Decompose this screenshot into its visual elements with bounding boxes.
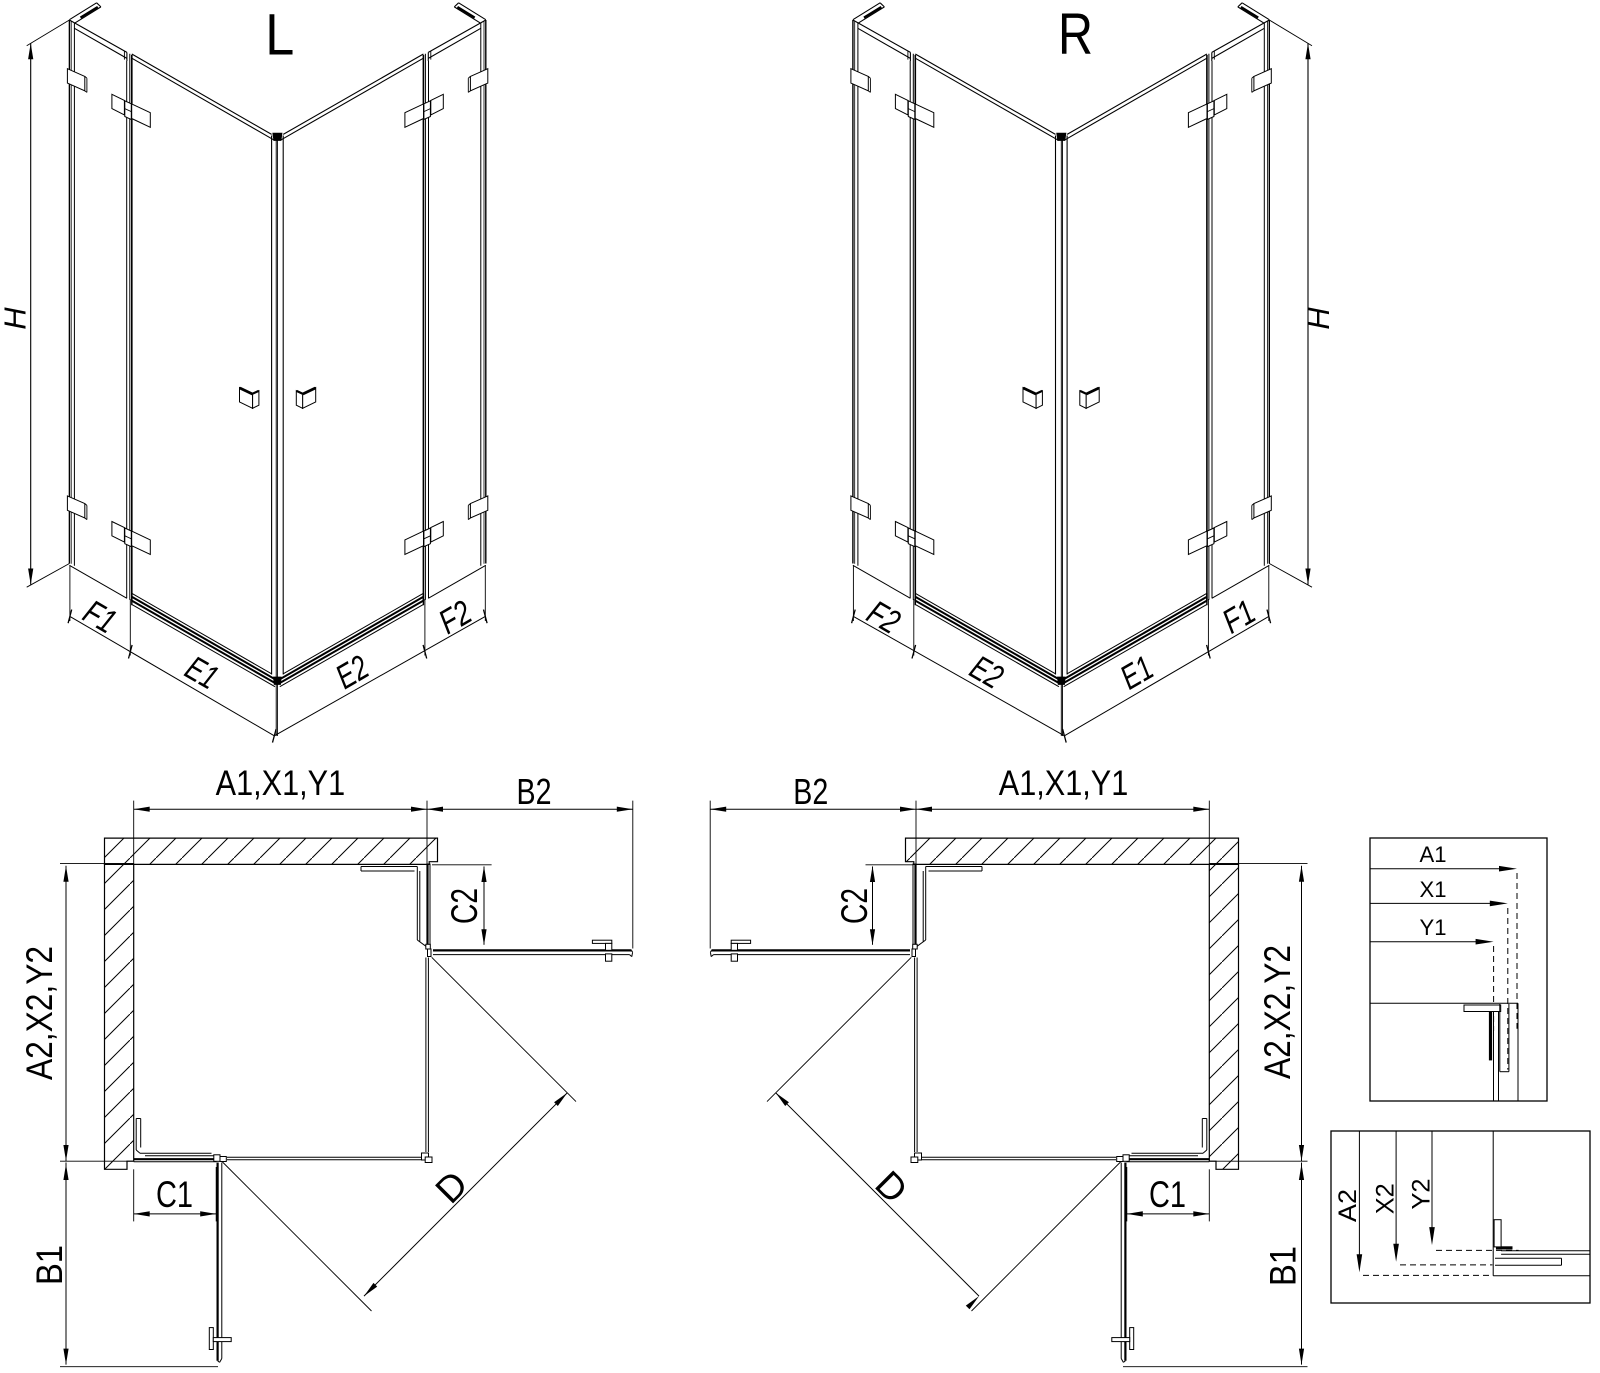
svg-text:B2: B2 <box>793 771 828 812</box>
svg-text:H: H <box>0 307 33 330</box>
svg-text:R: R <box>1058 2 1093 67</box>
svg-text:C1: C1 <box>1149 1174 1186 1215</box>
svg-text:B1: B1 <box>29 1245 70 1285</box>
svg-text:A1,X1,Y1: A1,X1,Y1 <box>216 764 346 803</box>
svg-text:Y1: Y1 <box>1420 915 1447 940</box>
svg-text:B2: B2 <box>517 771 552 812</box>
svg-text:C1: C1 <box>156 1174 193 1215</box>
svg-text:B1: B1 <box>1263 1246 1304 1286</box>
svg-text:A1,X1,Y1: A1,X1,Y1 <box>999 764 1129 803</box>
svg-text:A2,X2,Y2: A2,X2,Y2 <box>19 946 60 1080</box>
svg-text:L: L <box>265 3 294 68</box>
svg-text:A2,X2,Y2: A2,X2,Y2 <box>1257 945 1298 1079</box>
svg-text:C2: C2 <box>834 888 875 924</box>
svg-text:C2: C2 <box>444 888 485 924</box>
svg-text:A1: A1 <box>1420 842 1447 867</box>
svg-text:A2: A2 <box>1334 1189 1362 1222</box>
svg-text:Y2: Y2 <box>1408 1179 1436 1210</box>
svg-text:H: H <box>1301 307 1336 330</box>
svg-text:X1: X1 <box>1420 877 1447 902</box>
svg-text:X2: X2 <box>1372 1183 1400 1214</box>
